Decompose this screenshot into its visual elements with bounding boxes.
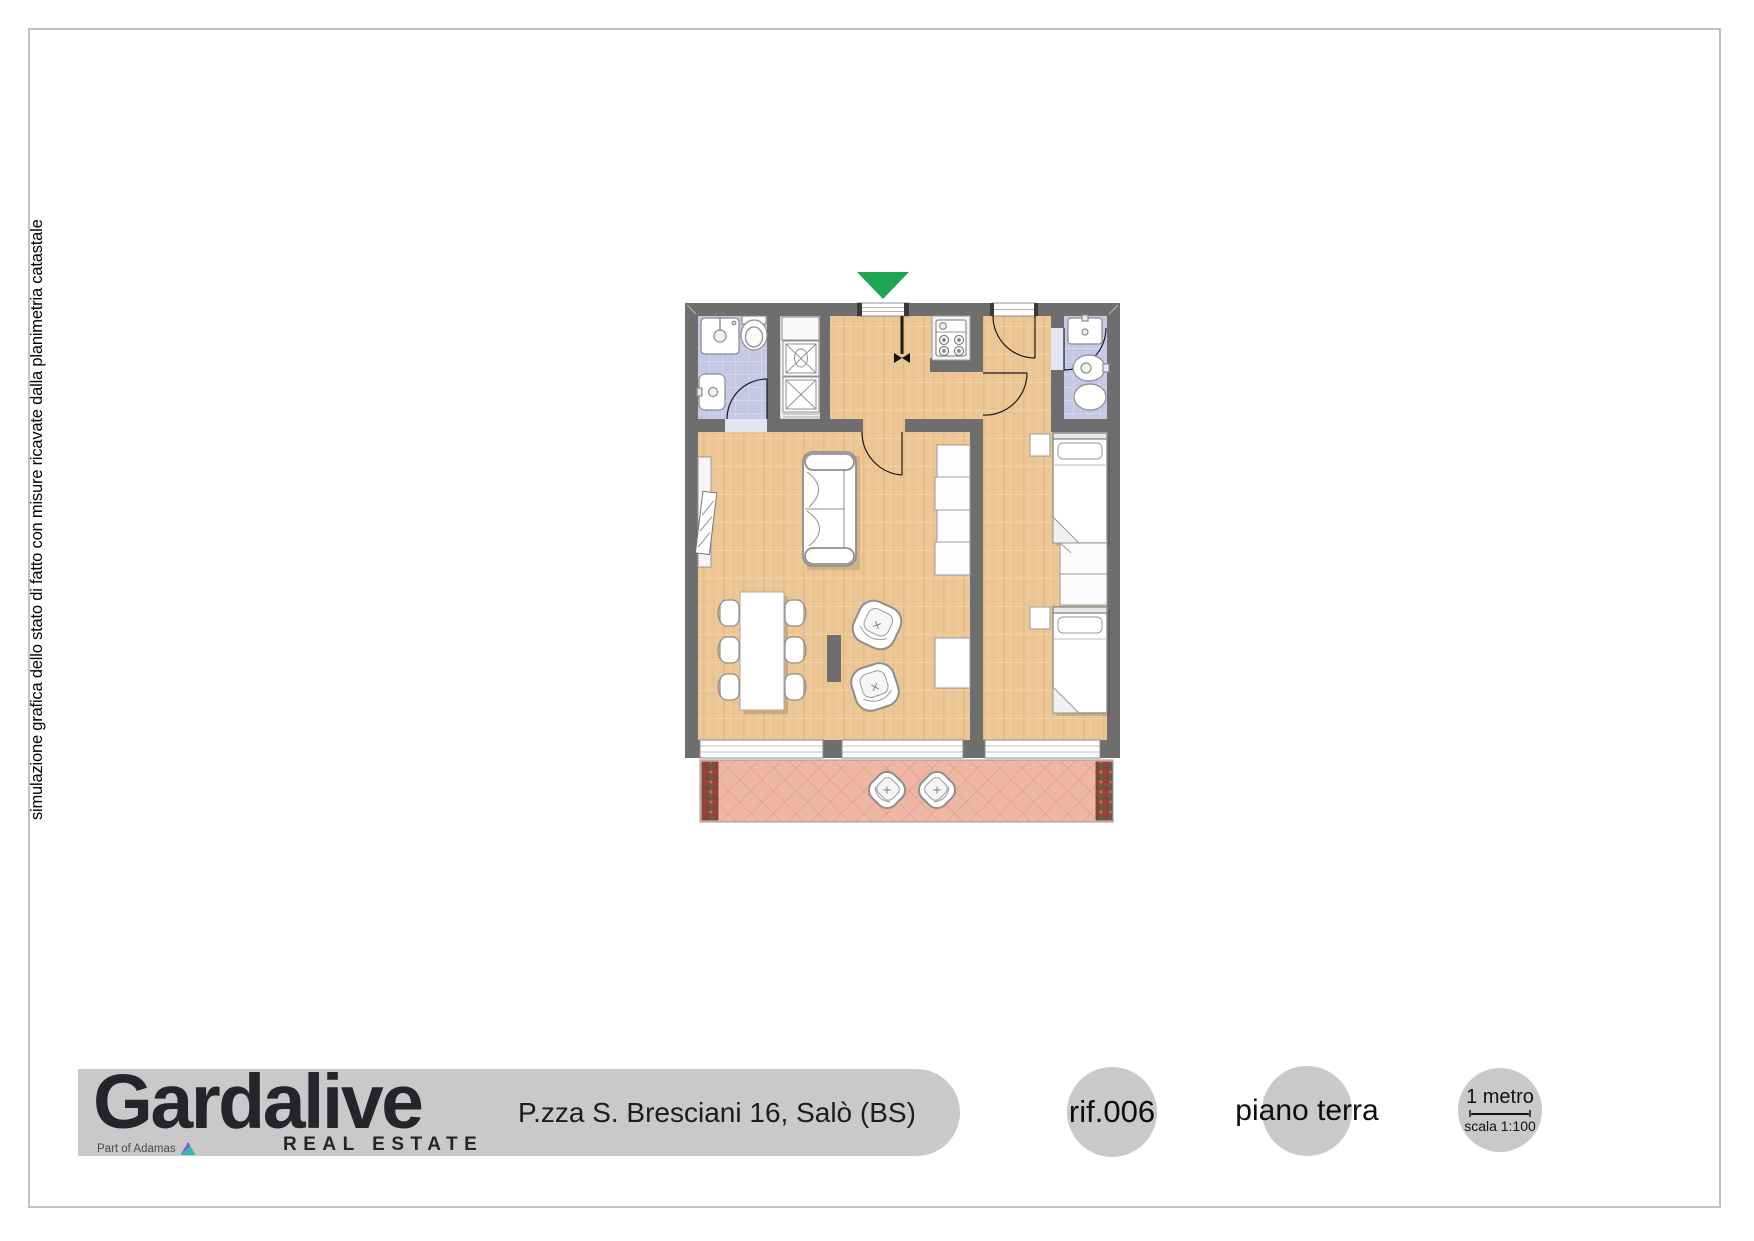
single-bed <box>1053 607 1107 713</box>
kitchen-stove <box>932 316 970 360</box>
floor-plan-svg <box>683 270 1123 826</box>
bathroom-1-threshold <box>725 419 767 432</box>
terrace-windows <box>700 740 1100 758</box>
adamas-triangle-icon <box>181 1142 196 1155</box>
console-dark <box>827 635 841 682</box>
secondary-door <box>990 303 1038 316</box>
scale-badge: 1 metro scala 1:100 <box>1458 1068 1542 1152</box>
nightstand <box>1030 607 1050 629</box>
floor-badge: piano terra <box>1262 1066 1352 1156</box>
floor-label: piano terra <box>1235 1094 1378 1128</box>
scale-bar <box>1469 1110 1531 1117</box>
single-bed <box>1053 433 1107 543</box>
agency-partner: Part of Adamas <box>97 1142 196 1155</box>
planter-right <box>1096 762 1112 820</box>
agency-logo-subtitle: REAL ESTATE <box>283 1134 483 1156</box>
cabinet-icon <box>782 317 819 340</box>
partner-label: Part of Adamas <box>97 1143 176 1155</box>
scale-ratio-label: scala 1:100 <box>1464 1118 1536 1134</box>
agency-logo: Gardalive <box>93 1062 421 1142</box>
property-address: P.zza S. Bresciani 16, Salò (BS) <box>518 1069 916 1156</box>
plan-sheet: simulazione grafica dello stato di fatto… <box>0 0 1754 1241</box>
nightstand <box>1030 434 1050 456</box>
scale-length-label: 1 metro <box>1466 1086 1534 1109</box>
entrance-arrow-icon <box>857 272 909 299</box>
shelf-column <box>935 445 970 575</box>
floor-plan <box>683 270 1123 826</box>
reference-label: rif.006 <box>1069 1094 1155 1130</box>
toilet-icon <box>1074 384 1106 410</box>
planter-left <box>702 762 718 820</box>
dining-table <box>740 592 784 710</box>
bathroom-2-threshold <box>1051 328 1064 370</box>
disclaimer-vertical-text: simulazione grafica dello stato di fatto… <box>28 160 47 820</box>
laundry-units <box>782 317 819 417</box>
sideboard <box>935 638 970 688</box>
sofa <box>803 452 856 566</box>
reference-badge: rif.006 <box>1067 1067 1157 1157</box>
terrace <box>700 760 1113 822</box>
